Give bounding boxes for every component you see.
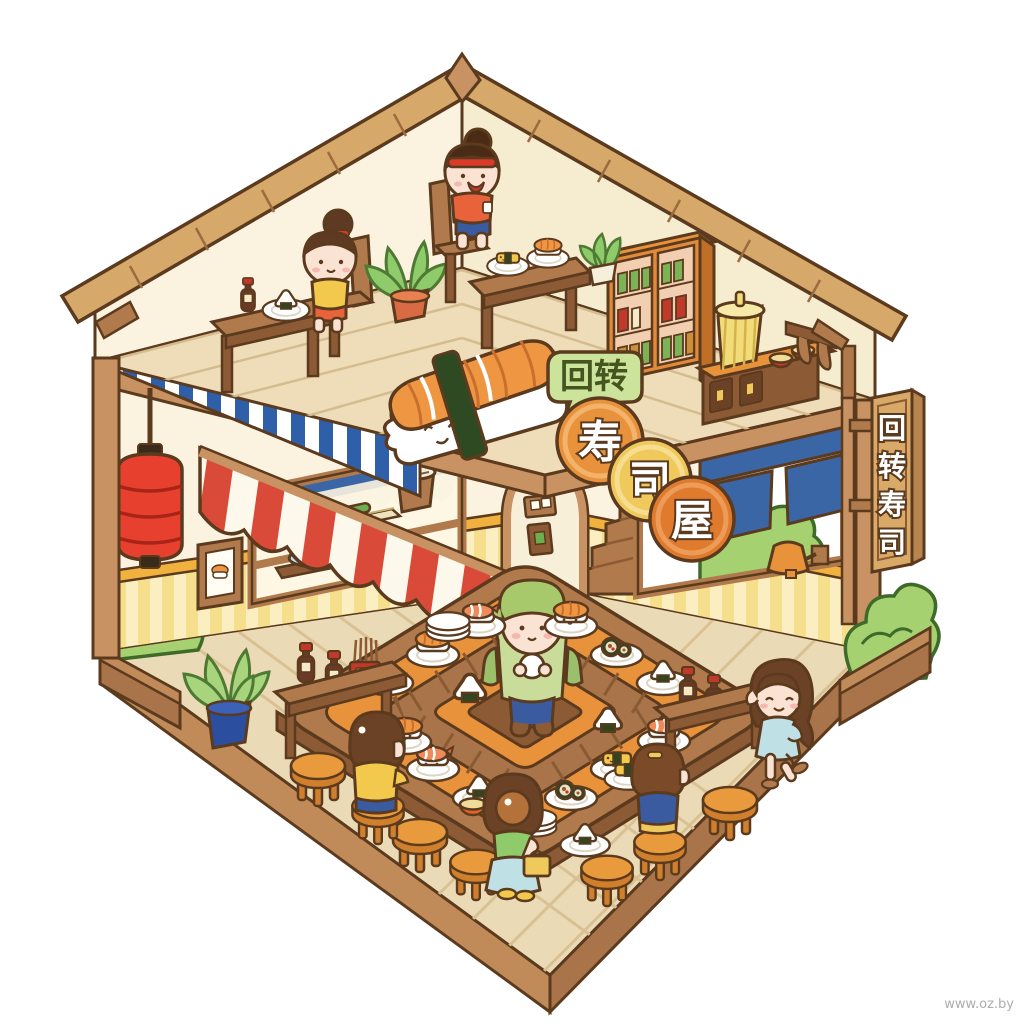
bubble-label: 回转 <box>560 357 628 397</box>
soy-bottle <box>241 278 255 311</box>
svg-text:转: 转 <box>878 450 906 483</box>
framed-sushi-picture <box>198 538 242 609</box>
illustration-canvas: 回转 寿 司 屋 回 转 寿 司 www.oz.by <box>0 0 1024 1024</box>
svg-text:回: 回 <box>878 412 906 445</box>
svg-text:寿: 寿 <box>878 488 906 521</box>
sushi-restaurant-illustration: 回转 寿 司 屋 回 转 寿 司 www.oz.by <box>0 0 1024 1024</box>
yellow-basket <box>716 292 764 370</box>
svg-text:司: 司 <box>878 526 906 559</box>
watermark: www.oz.by <box>944 997 1014 1012</box>
sign-circle-3: 屋 <box>650 477 734 561</box>
left-corner-post <box>93 358 119 658</box>
svg-text:屋: 屋 <box>671 496 713 545</box>
